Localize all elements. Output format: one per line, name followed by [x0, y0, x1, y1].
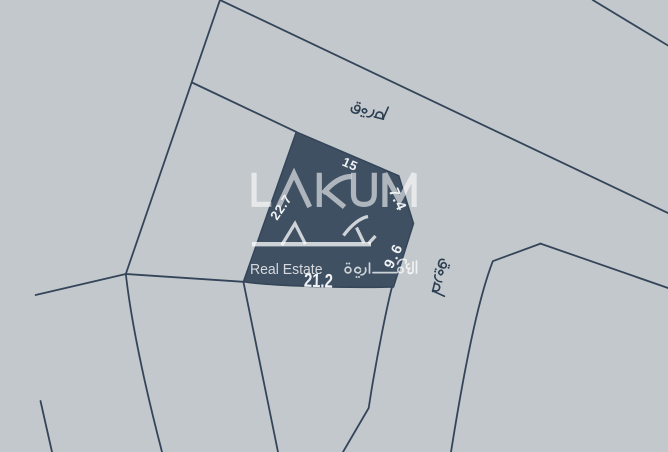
- svg-text:21.2: 21.2: [304, 270, 334, 293]
